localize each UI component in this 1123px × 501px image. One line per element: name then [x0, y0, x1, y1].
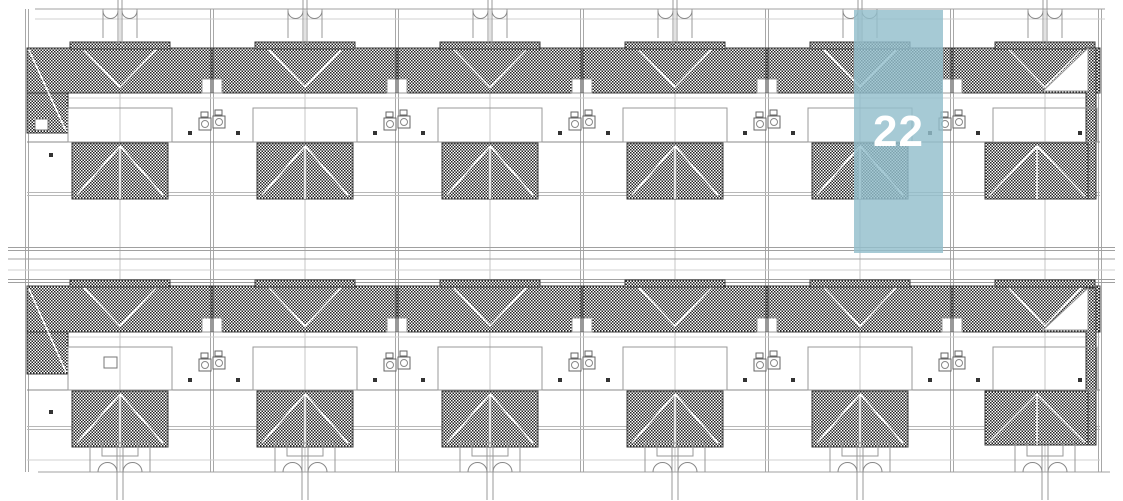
chimney-pair: [384, 351, 410, 371]
chimneys-bottom: [199, 351, 965, 371]
hip-roof: [812, 391, 908, 447]
selected-unit-highlight[interactable]: 22: [854, 10, 943, 253]
chimney-pair: [199, 351, 225, 371]
chimney-pair: [384, 110, 410, 130]
chimney-pair: [939, 351, 965, 371]
hip-roof: [442, 143, 538, 199]
site-plan: 22: [0, 0, 1123, 501]
hip-roof: [627, 391, 723, 447]
rooflight: [104, 357, 117, 368]
hip-roof: [442, 391, 538, 447]
hip-roof: [257, 391, 353, 447]
hip-roof: [72, 143, 168, 199]
rooflight: [35, 119, 48, 130]
chimney-pair: [569, 110, 595, 130]
chimney-pair: [199, 110, 225, 130]
left-wrap-roof: [27, 332, 68, 374]
chimney-pair: [569, 351, 595, 371]
plot-marker-dots-bottom: [49, 378, 1082, 414]
hip-roof: [257, 143, 353, 199]
selected-unit-number: 22: [873, 110, 924, 154]
site-plan-drawing: [0, 0, 1123, 501]
chimneys-top: [199, 110, 965, 130]
roof-band: [27, 286, 1100, 332]
chimney-pair: [754, 110, 780, 130]
hip-roof: [72, 391, 168, 447]
chimney-pair: [754, 351, 780, 371]
hip-roof: [627, 143, 723, 199]
